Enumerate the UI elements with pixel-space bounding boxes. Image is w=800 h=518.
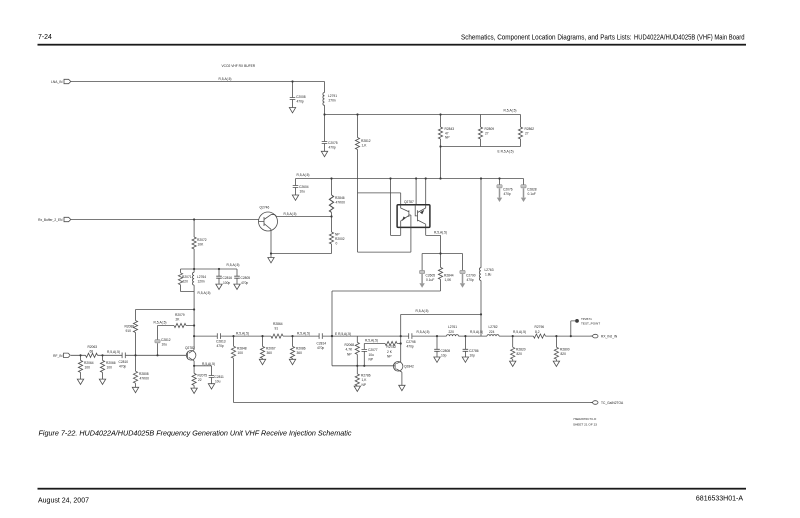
svg-text:R,5,A(.5): R,5,A(.5): [504, 109, 517, 113]
svg-text:10p: 10p: [441, 354, 447, 358]
svg-text:R,5,A(.5): R,5,A(.5): [154, 321, 167, 325]
svg-text:C2786: C2786: [469, 349, 479, 353]
svg-text:TP2671: TP2671: [581, 317, 592, 321]
svg-text:470p: 470p: [241, 281, 248, 285]
svg-text:R2808: R2808: [139, 372, 149, 376]
svg-text:R2846: R2846: [335, 196, 345, 200]
svg-text:NP: NP: [347, 352, 352, 356]
svg-text:C2790: C2790: [466, 273, 476, 277]
svg-text:910: 910: [126, 329, 132, 333]
svg-text:R,5,A(.5): R,5,A(.5): [365, 338, 378, 342]
svg-text:R2782: R2782: [387, 345, 397, 349]
svg-text:470p: 470p: [407, 345, 414, 349]
svg-text:2 K: 2 K: [387, 350, 393, 354]
svg-text:470p: 470p: [467, 278, 474, 282]
svg-text:27: 27: [525, 131, 529, 135]
svg-text:R2864: R2864: [273, 322, 283, 326]
svg-text:470p: 470p: [297, 100, 304, 104]
svg-text:0.1uF: 0.1uF: [528, 192, 536, 196]
svg-text:C2828: C2828: [527, 187, 537, 191]
svg-text:360: 360: [297, 351, 303, 355]
svg-text:R2072: R2072: [197, 238, 207, 242]
svg-text:NP: NP: [369, 358, 374, 362]
svg-text:R,5,A(.5): R,5,A(.5): [219, 77, 232, 81]
svg-text:C2798: C2798: [406, 340, 416, 344]
svg-text:C2812: C2812: [161, 338, 171, 342]
svg-text:R2786: R2786: [361, 374, 371, 378]
svg-text:R,5,A(.5): R,5,A(.5): [284, 212, 297, 216]
svg-text:RF_IN: RF_IN: [53, 354, 63, 358]
svg-text:2K: 2K: [176, 318, 181, 322]
svg-text:470p: 470p: [217, 344, 224, 348]
svg-text:360: 360: [267, 351, 273, 355]
svg-text:R2800: R2800: [560, 347, 570, 351]
svg-text:1,K: 1,K: [362, 378, 368, 382]
svg-text:R2002: R2002: [335, 237, 345, 241]
svg-text:Q2842: Q2842: [404, 365, 414, 369]
svg-text:C2810: C2810: [119, 360, 129, 364]
svg-text:C2604: C2604: [299, 185, 309, 189]
svg-text:R2075: R2075: [198, 373, 208, 377]
svg-text:R2068: R2068: [345, 343, 355, 347]
svg-text:R2066: R2066: [106, 361, 116, 365]
svg-text:1,K: 1,K: [362, 144, 368, 148]
svg-text:R2812: R2812: [361, 139, 371, 143]
svg-text:R,5,A(.5): R,5,A(.5): [417, 330, 430, 334]
svg-text:1,0K: 1,0K: [445, 278, 453, 282]
svg-text:R,5,A(.5): R,5,A(.5): [107, 350, 120, 354]
svg-text:820: 820: [517, 352, 523, 356]
svg-text:R,5,A(.5): R,5,A(.5): [202, 362, 215, 366]
svg-text:L2764: L2764: [197, 275, 206, 279]
svg-text:22: 22: [198, 378, 202, 382]
svg-text:R2086: R2086: [296, 346, 306, 350]
svg-text:RX_INJ_IN: RX_INJ_IN: [601, 335, 618, 339]
svg-text:68: 68: [90, 349, 94, 353]
svg-text:L2761: L2761: [448, 325, 457, 329]
svg-text:R2071: R2071: [182, 275, 192, 279]
svg-text:47: 47: [445, 131, 449, 135]
svg-text:820: 820: [561, 352, 567, 356]
svg-text:LNA_IN: LNA_IN: [51, 80, 63, 84]
svg-text:R2796: R2796: [535, 325, 545, 329]
svg-text:C2075: C2075: [328, 141, 338, 145]
svg-text:Q2787: Q2787: [404, 200, 414, 204]
svg-text:R,5,A(.5): R,5,A(.5): [198, 291, 211, 295]
svg-text:7-24: 7-24: [38, 34, 52, 41]
svg-text:L2791: L2791: [328, 94, 337, 98]
svg-text:NP: NP: [387, 355, 392, 359]
svg-text:TC_GaIN2TOA: TC_GaIN2TOA: [601, 401, 624, 405]
svg-text:100p: 100p: [223, 281, 230, 285]
svg-text:R2088: R2088: [125, 324, 135, 328]
svg-text:100: 100: [107, 366, 113, 370]
svg-text:120n: 120n: [198, 280, 205, 284]
svg-text:L2763: L2763: [485, 268, 494, 272]
svg-text:Q2746: Q2746: [260, 205, 270, 209]
svg-text:C2813: C2813: [216, 340, 226, 344]
svg-text:NP: NP: [362, 383, 367, 387]
svg-text:270n: 270n: [329, 99, 336, 103]
svg-text:47K00: 47K00: [336, 201, 346, 205]
svg-text:0: 0: [336, 242, 338, 246]
svg-text:R,5,A(.5): R,5,A(.5): [227, 263, 240, 267]
svg-text:Rx_Buffer_2_EN: Rx_Buffer_2_EN: [38, 218, 63, 222]
svg-text:100: 100: [85, 366, 91, 370]
svg-text:VCO2 VHF RX BUFER: VCO2 VHF RX BUFER: [222, 64, 256, 68]
svg-text:0.1uF: 0.1uF: [426, 278, 434, 282]
svg-text:R2848: R2848: [237, 346, 247, 350]
svg-text:10u: 10u: [369, 353, 375, 357]
svg-text:R,5,A(.5): R,5,A(.5): [513, 330, 526, 334]
svg-text:6816533H01-A: 6816533H01-A: [696, 496, 743, 503]
svg-text:470p: 470p: [317, 346, 324, 350]
svg-text:NP: NP: [445, 136, 450, 140]
svg-text:220: 220: [183, 280, 189, 284]
svg-text:August 24, 2007: August 24, 2007: [38, 498, 89, 505]
svg-text:224: 224: [489, 330, 495, 334]
svg-text:4,7K: 4,7K: [346, 348, 354, 352]
svg-text:R2063: R2063: [88, 345, 98, 349]
svg-text:1.8u: 1.8u: [485, 273, 492, 277]
svg-text:R,5,A(.5): R,5,A(.5): [236, 332, 249, 336]
svg-text:C2605: C2605: [426, 273, 436, 277]
svg-text:C2008: C2008: [296, 95, 306, 99]
svg-text:R2820: R2820: [516, 347, 526, 351]
svg-text:SHEET 21 OF 23: SHEET 21 OF 23: [573, 423, 597, 427]
svg-text:E R,5,A(.5): E R,5,A(.5): [498, 149, 514, 153]
svg-text:C2811: C2811: [215, 375, 225, 379]
svg-text:Figure 7-22. HUD4022A/HUD4025B: Figure 7-22. HUD4022A/HUD4025B Frequency…: [39, 429, 352, 437]
svg-text:C2816: C2816: [223, 276, 233, 280]
svg-text:R,5,A(.5): R,5,A(.5): [416, 309, 429, 313]
svg-text:220: 220: [449, 330, 455, 334]
svg-text:73E02976C73-O: 73E02976C73-O: [573, 417, 597, 421]
svg-text:C2805: C2805: [241, 276, 251, 280]
svg-text:TEST_POINT: TEST_POINT: [581, 321, 600, 325]
svg-text:R,5,A(.5): R,5,A(.5): [470, 330, 483, 334]
svg-text:L2782: L2782: [489, 325, 498, 329]
svg-text:R,5,A(.5): R,5,A(.5): [297, 173, 310, 177]
svg-text:27: 27: [485, 131, 489, 135]
svg-text:R2067: R2067: [266, 346, 276, 350]
svg-text:R2064: R2064: [84, 361, 94, 365]
svg-text:C2077: C2077: [368, 348, 378, 352]
svg-text:47K00: 47K00: [140, 377, 150, 381]
svg-text:E R,5,A(.5): E R,5,A(.5): [335, 332, 351, 336]
svg-text:10p: 10p: [470, 354, 476, 358]
svg-text:R2079: R2079: [175, 313, 185, 317]
svg-text:R,5,A(.5): R,5,A(.5): [434, 231, 447, 235]
svg-text:470p: 470p: [504, 192, 511, 196]
svg-text:Q2782: Q2782: [185, 346, 195, 350]
svg-text:NP: NP: [335, 232, 340, 236]
svg-text:10u: 10u: [162, 343, 168, 347]
svg-text:470p: 470p: [119, 365, 126, 369]
svg-text:R,5,A(.5): R,5,A(.5): [297, 332, 310, 336]
svg-text:10u: 10u: [300, 190, 306, 194]
svg-text:R2844: R2844: [444, 273, 454, 277]
svg-text:100: 100: [238, 351, 244, 355]
svg-text:C2076: C2076: [503, 187, 513, 191]
svg-text:10u: 10u: [215, 380, 221, 384]
svg-text:Schematics, Component Location: Schematics, Component Location Diagrams,…: [461, 35, 632, 42]
svg-text:91: 91: [275, 327, 279, 331]
svg-text:470p: 470p: [329, 146, 336, 150]
svg-text:C2814: C2814: [317, 341, 327, 345]
svg-text:10K: 10K: [198, 243, 205, 247]
svg-text:8,2: 8,2: [535, 330, 540, 334]
svg-text:HUD4022A/HUD4025B (VHF) Main B: HUD4022A/HUD4025B (VHF) Main Board: [634, 35, 745, 42]
svg-text:C2808: C2808: [441, 349, 451, 353]
